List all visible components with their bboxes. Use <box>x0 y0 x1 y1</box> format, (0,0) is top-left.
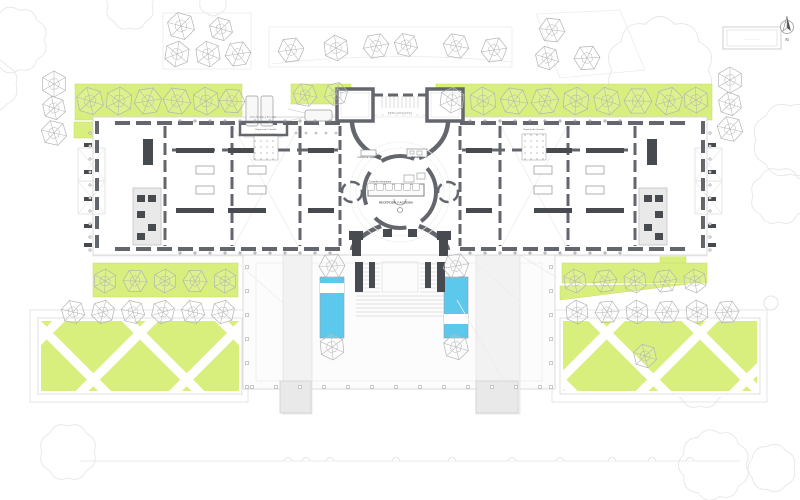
pier-or-case <box>308 148 334 153</box>
pier-or-case <box>586 208 624 213</box>
plan-element <box>443 386 446 389</box>
plan-element <box>295 132 297 134</box>
pier-or-case <box>148 195 156 202</box>
plan-element <box>393 458 400 461</box>
furniture <box>254 134 278 160</box>
pier-or-case <box>308 208 334 213</box>
surface <box>280 381 311 413</box>
plan-element <box>709 223 711 225</box>
pier-or-case <box>425 262 431 288</box>
plan-element <box>246 362 249 365</box>
plan-element <box>89 249 91 251</box>
plan-element <box>550 314 553 317</box>
pier-or-case <box>466 148 492 153</box>
guide-path <box>272 56 512 64</box>
pier-or-case <box>708 243 716 247</box>
parterre-garden <box>560 318 760 394</box>
plan-element <box>515 386 518 389</box>
site-plan-canvas: Zona de carga y descargaSubida a planta … <box>0 0 800 500</box>
plan-element <box>709 145 711 147</box>
tree-icon <box>43 71 66 97</box>
tree-icon <box>324 35 348 61</box>
tree-canopy-outline <box>41 425 96 480</box>
plan-label-norte: N <box>785 37 788 42</box>
pier-or-case <box>655 195 663 202</box>
plan-element <box>89 158 91 160</box>
pier-or-case <box>137 211 145 218</box>
column-dots <box>89 132 91 251</box>
tree-icon <box>43 96 66 119</box>
plan-element <box>491 386 494 389</box>
pier-or-case <box>84 243 92 247</box>
plan-element <box>89 171 91 173</box>
pier-or-case <box>143 139 153 165</box>
furniture <box>410 151 414 154</box>
plan-label-control-seguridad: Control de Seguridad <box>358 156 381 159</box>
furniture <box>586 166 604 174</box>
tree-canopy-outline <box>754 104 800 175</box>
plan-element <box>550 290 553 293</box>
plan-element <box>285 458 292 461</box>
furniture <box>404 175 414 182</box>
site-plan: Zona de carga y descargaSubida a planta … <box>0 0 800 500</box>
plan-element <box>89 210 91 212</box>
furniture <box>361 150 376 156</box>
plan-element <box>709 197 711 199</box>
plan-element <box>246 314 249 317</box>
pier-or-case <box>349 231 363 240</box>
plan-element <box>323 386 326 389</box>
pier-or-case <box>176 208 214 213</box>
tree-canopy-outline <box>0 59 17 111</box>
plan-element <box>413 184 420 191</box>
furniture <box>196 166 214 174</box>
plan-element <box>246 338 249 341</box>
plan-element <box>709 132 711 134</box>
pier-or-case <box>228 208 266 213</box>
pier-or-case <box>355 262 363 292</box>
plan-element <box>315 132 317 134</box>
plan-label-consulta-informatica: Consulta informática <box>369 181 392 184</box>
plan-element <box>89 145 91 147</box>
tree-icon <box>278 38 304 62</box>
furniture <box>534 166 552 174</box>
plan-label-espacio-consulta-der: Espacio de Consulta <box>523 128 545 131</box>
plan-element <box>377 184 384 191</box>
guide-line <box>288 109 305 113</box>
tree-icon <box>225 42 251 66</box>
tree-icon <box>539 18 565 42</box>
tree-icon <box>481 38 507 62</box>
plan-element <box>303 458 310 461</box>
plan-element <box>299 386 302 389</box>
plan-element <box>449 458 456 461</box>
tree-icon <box>574 46 600 69</box>
tree-icon <box>717 117 742 142</box>
furniture <box>522 134 546 160</box>
plan-element <box>709 184 711 186</box>
plan-element <box>395 184 402 191</box>
plan-element <box>246 290 249 293</box>
plan-element <box>305 132 307 134</box>
furniture <box>417 151 422 155</box>
furniture <box>305 110 332 121</box>
pier-or-case <box>176 148 214 153</box>
plan-element <box>709 171 711 173</box>
pier-or-case <box>408 229 417 237</box>
tree-icon <box>536 46 559 69</box>
pier-or-case <box>137 233 145 240</box>
pier-or-case <box>534 208 572 213</box>
plan-element <box>246 386 249 389</box>
surface <box>476 381 518 413</box>
pool <box>444 277 468 338</box>
pier-or-case <box>383 229 392 237</box>
furniture <box>417 173 425 179</box>
pier-or-case <box>644 195 652 202</box>
tree-canopy-outline <box>0 7 46 73</box>
plan-element <box>419 386 422 389</box>
plan-element <box>251 386 254 389</box>
plan-label-recepcion-acogida: RECEPCIÓN Y ACOGIDA <box>379 200 413 205</box>
plan-element <box>335 132 337 134</box>
plan-element <box>550 338 553 341</box>
pier-or-case <box>352 240 361 256</box>
tree-icon <box>443 34 469 58</box>
furniture <box>196 186 214 194</box>
tree-icon <box>363 34 389 58</box>
plan-element <box>709 158 711 160</box>
furniture <box>248 166 266 174</box>
plan-element <box>404 184 411 191</box>
plan-element <box>371 386 374 389</box>
plan-element <box>539 386 542 389</box>
plan-element <box>89 184 91 186</box>
plan-label-subida-planta: Subida a planta primera <box>388 112 413 115</box>
tree-icon <box>719 92 742 115</box>
tree-icon <box>394 34 417 57</box>
pool <box>320 283 344 293</box>
pier-or-case <box>148 224 156 231</box>
plan-element <box>386 184 393 191</box>
plan-element <box>709 249 711 251</box>
pier-or-case <box>137 195 145 202</box>
lawn <box>74 122 94 138</box>
plan-label-caja-rotulo: ·· ····· ······ ·· ··· <box>743 38 761 41</box>
pier-or-case <box>437 231 451 240</box>
stair-hatch <box>382 96 418 108</box>
furniture <box>586 186 604 194</box>
plan-element <box>509 458 516 461</box>
tree-icon <box>210 17 233 40</box>
tree-canopy-outline <box>107 0 153 29</box>
tree-canopy-outline <box>678 430 748 500</box>
plan-element <box>325 132 327 134</box>
tree-canopy-outline <box>752 169 800 224</box>
plan-label-recepcion: Recepción <box>411 157 423 159</box>
furniture <box>534 186 552 194</box>
pier-or-case <box>439 240 448 256</box>
circle-element <box>764 296 778 310</box>
plan-element <box>709 210 711 212</box>
pier-or-case <box>369 262 375 288</box>
hedge-row <box>285 458 694 461</box>
plan-element <box>395 386 398 389</box>
tree-icon <box>165 41 189 67</box>
tree-icon <box>41 121 66 146</box>
plan-element <box>89 223 91 225</box>
plan-element <box>89 236 91 238</box>
furniture <box>248 186 266 194</box>
tree-canopy-outline <box>200 0 226 16</box>
plan-label-zona-carga: Zona de carga y descarga <box>250 116 277 119</box>
plan-element <box>368 184 375 191</box>
plan-element <box>467 386 470 389</box>
pier-or-case <box>586 148 624 153</box>
pier-or-case <box>466 208 492 213</box>
plan-label-espacio-consulta-izq: Espacio de Consulta <box>255 128 277 131</box>
plan-element <box>89 197 91 199</box>
pier-or-case <box>655 233 663 240</box>
plan-element <box>550 266 553 269</box>
parterre-garden <box>38 318 242 394</box>
pier-or-case <box>647 139 657 165</box>
tree-icon <box>168 13 195 40</box>
tree-canopy-outline <box>748 444 795 491</box>
pier-or-case <box>655 211 663 218</box>
tree-icon <box>719 67 742 93</box>
plan-element <box>609 458 616 461</box>
column-dots <box>709 132 711 251</box>
pier-or-case <box>644 224 652 231</box>
plan-element <box>246 266 249 269</box>
pool <box>444 314 468 324</box>
plan-element <box>347 386 350 389</box>
plan-element <box>550 362 553 365</box>
plan-element <box>649 458 656 461</box>
plan-element <box>709 236 711 238</box>
plan-element <box>550 386 553 389</box>
plan-element <box>275 386 278 389</box>
tree-icon <box>196 41 220 67</box>
plan-element <box>557 458 564 461</box>
plan-element <box>89 132 91 134</box>
plan-element <box>687 458 694 461</box>
plan-element <box>327 458 334 461</box>
